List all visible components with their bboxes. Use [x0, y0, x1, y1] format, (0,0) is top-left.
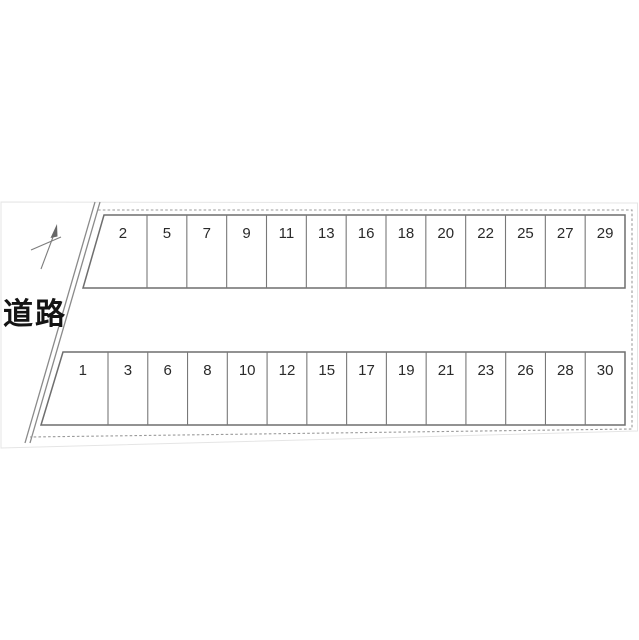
parking-row-bottom: 136810121517192123262830: [41, 352, 625, 425]
stall-number: 5: [163, 225, 171, 242]
stall-number: 2: [119, 225, 127, 242]
stall-number: 6: [163, 362, 171, 379]
stall-number: 13: [318, 225, 335, 242]
stall-number: 16: [358, 225, 375, 242]
road-label: 道路: [3, 297, 67, 332]
parking-layout-diagram: 道路 2579111316182022252729 13681012151719…: [0, 0, 639, 640]
stall-number: 26: [517, 362, 534, 379]
stall-number: 9: [242, 225, 250, 242]
stall-number: 27: [557, 225, 574, 242]
stall-number: 8: [203, 362, 211, 379]
stall-number: 1: [79, 362, 87, 379]
survey-arrow-icon: [31, 224, 61, 269]
stall-number: 28: [557, 362, 574, 379]
stall-number: 3: [124, 362, 132, 379]
stall-number: 15: [318, 362, 335, 379]
stall-number: 10: [239, 362, 256, 379]
parking-layout-page: 道路 2579111316182022252729 13681012151719…: [0, 0, 639, 640]
stall-number: 25: [517, 225, 534, 242]
stall-number: 12: [279, 362, 296, 379]
stall-number: 21: [438, 362, 455, 379]
stall-number: 22: [477, 225, 494, 242]
parking-row-top: 2579111316182022252729: [83, 215, 625, 288]
stall-number: 11: [279, 225, 295, 242]
stall-number: 18: [398, 225, 415, 242]
stall-number: 19: [398, 362, 415, 379]
stall-number: 7: [203, 225, 211, 242]
stall-number: 23: [477, 362, 494, 379]
stall-number: 29: [597, 225, 614, 242]
stall-number: 30: [597, 362, 614, 379]
stall-number: 17: [358, 362, 375, 379]
stall-number: 20: [437, 225, 454, 242]
